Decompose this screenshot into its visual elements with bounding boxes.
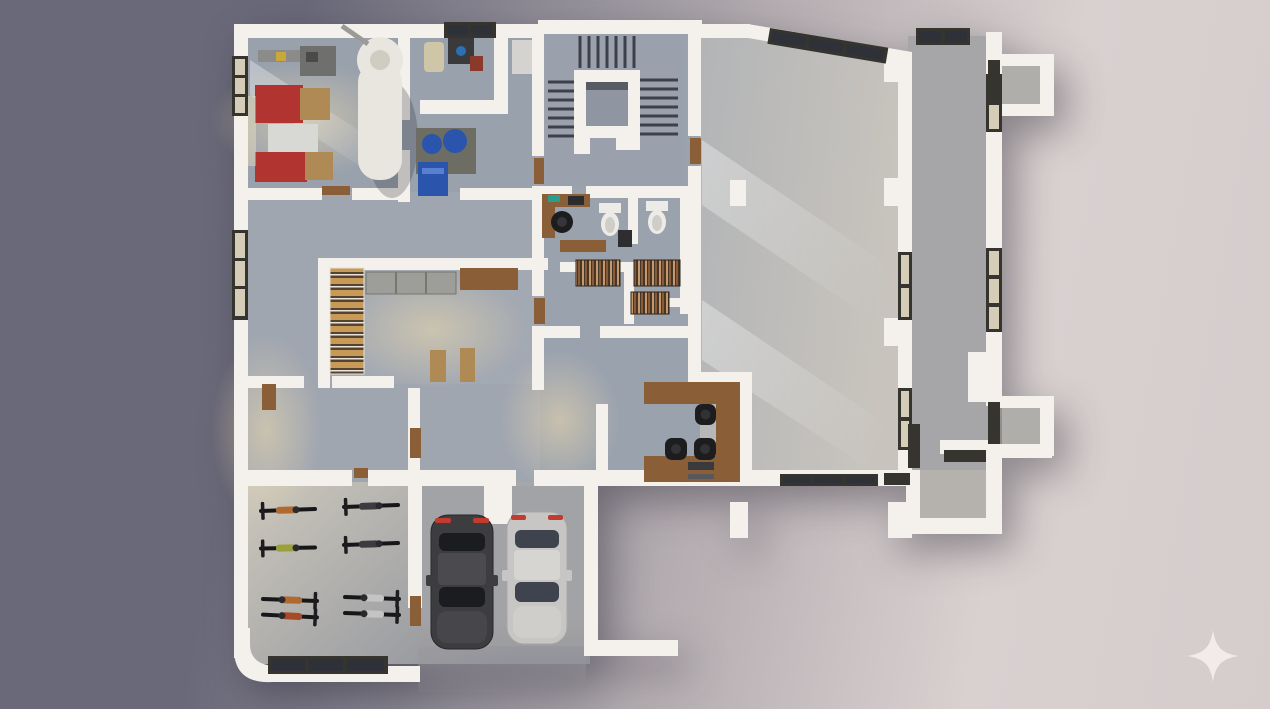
roof	[514, 550, 560, 580]
office-chair	[694, 438, 716, 460]
car-dark	[426, 515, 498, 649]
bay-bottom-wall	[1000, 444, 1052, 458]
office-chair	[695, 404, 716, 425]
bench	[430, 350, 446, 382]
wall-top-hall	[700, 24, 750, 38]
window	[232, 56, 248, 116]
drawer-unit	[688, 462, 714, 470]
teal-laptop	[548, 195, 560, 202]
crate-top	[305, 152, 333, 180]
window-band	[268, 656, 388, 674]
roof	[438, 553, 486, 585]
partition	[460, 188, 540, 200]
right-corridor-floor	[908, 36, 992, 486]
bike-garage-divider	[408, 486, 422, 608]
bookshelf	[576, 260, 620, 286]
partition	[532, 24, 544, 156]
blue-pump	[422, 134, 442, 154]
light-glow	[211, 335, 321, 525]
cabinet-vent	[422, 168, 444, 174]
mirror	[491, 575, 498, 586]
taillight	[548, 515, 563, 520]
wall-garage-l-horiz	[584, 640, 678, 656]
partition	[600, 326, 692, 338]
hall-left-wall	[688, 24, 701, 136]
bench	[460, 348, 475, 382]
stair-treads-right	[640, 80, 678, 134]
car-silver	[502, 512, 572, 644]
stair-treads-left	[548, 82, 574, 136]
door	[262, 384, 276, 410]
blue-pump	[443, 129, 467, 153]
taillight	[435, 518, 451, 523]
window-band	[780, 474, 878, 486]
door	[690, 138, 701, 164]
column	[730, 180, 746, 206]
mirror	[565, 570, 572, 581]
rear-window	[439, 533, 485, 551]
door	[354, 468, 368, 478]
drawer-handle	[688, 474, 714, 479]
skylight	[444, 22, 496, 38]
pilaster	[884, 58, 898, 82]
door	[534, 158, 544, 184]
partition	[332, 376, 394, 388]
pilaster	[884, 178, 898, 206]
windshield	[439, 587, 485, 607]
wall-right-step	[968, 352, 1002, 402]
pallet-rack	[330, 268, 364, 374]
bottom-bay-floor	[1002, 402, 1046, 450]
window	[986, 248, 1002, 332]
stair-island-shadow	[586, 82, 628, 90]
wall-bottom-band	[234, 470, 352, 486]
wall-garage-right	[584, 472, 598, 604]
window	[898, 252, 912, 320]
wooden-shelf	[460, 268, 518, 290]
door	[410, 428, 421, 458]
stair-treads-top	[580, 36, 634, 68]
beige-machine	[424, 42, 444, 72]
hood	[437, 611, 487, 643]
taillight	[511, 515, 526, 520]
red-unit	[255, 85, 303, 123]
corner-glass	[944, 450, 986, 462]
hall-left-wall	[688, 166, 701, 372]
stair-stub	[616, 132, 640, 150]
corner-floor	[908, 470, 996, 524]
partition	[586, 186, 692, 198]
small-red-machine	[470, 56, 483, 71]
top-bay-floor	[1002, 60, 1046, 108]
duct-valve	[276, 52, 286, 61]
corner-glass	[908, 424, 920, 468]
mirror	[426, 575, 433, 586]
crate-top	[300, 88, 330, 120]
skylight	[916, 28, 970, 45]
wall-top-stair	[538, 20, 702, 34]
windshield	[515, 582, 559, 602]
partition	[540, 326, 580, 338]
machine-dial	[456, 46, 466, 56]
hood	[513, 606, 561, 638]
red-unit	[255, 152, 307, 182]
building	[210, 20, 1054, 692]
partition	[420, 100, 508, 114]
pilaster	[884, 318, 898, 346]
blue-cabinet	[418, 162, 448, 196]
column	[888, 502, 912, 538]
monitor	[568, 196, 584, 205]
wooden-counter	[560, 240, 606, 252]
floorplan-render	[0, 0, 1270, 709]
column	[730, 502, 748, 538]
tank-cap	[370, 50, 390, 70]
stairwell	[546, 36, 682, 186]
window	[232, 230, 248, 320]
door	[322, 186, 350, 195]
bay-window	[988, 402, 1000, 444]
partition	[596, 404, 608, 486]
gray-cabinet-row	[366, 272, 456, 294]
bay-bottom-wall	[1000, 104, 1052, 116]
office-chair	[665, 438, 687, 460]
bay-window	[988, 60, 1000, 104]
bookshelf	[634, 260, 680, 286]
stair-stub	[574, 132, 590, 154]
storage-left-wall	[318, 262, 330, 388]
mirror	[502, 570, 509, 581]
gray-cabinet	[512, 40, 532, 74]
column	[484, 478, 512, 524]
bookshelf	[631, 292, 669, 314]
door	[534, 298, 545, 324]
taillight	[473, 518, 489, 523]
window-band	[884, 473, 910, 485]
wall-corner	[986, 450, 1002, 534]
rear-window	[515, 530, 559, 548]
door	[410, 596, 421, 626]
sparkle-logo-icon	[1187, 630, 1239, 682]
white-unit	[268, 124, 318, 152]
wall-bottom-band	[534, 470, 596, 486]
chair-seat	[557, 217, 567, 227]
partition	[246, 188, 322, 200]
dark-appliance	[618, 230, 632, 247]
machine-detail	[306, 52, 318, 62]
